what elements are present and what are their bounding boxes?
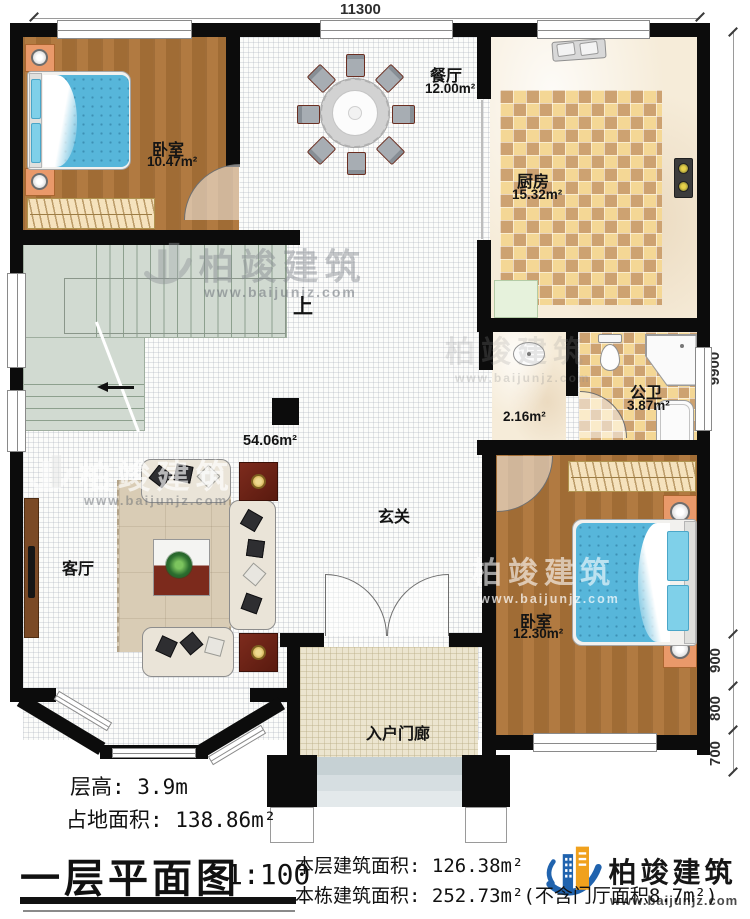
stairs-up-label: 上 <box>293 290 313 319</box>
sofa-pillow <box>173 463 193 483</box>
dining-chair <box>346 54 365 77</box>
stove-burner <box>678 163 689 174</box>
dining-chair <box>297 105 320 124</box>
wall-hallway-left <box>479 318 493 370</box>
footprint-area-text: 占地面积: 138.86m² <box>66 804 276 834</box>
potted-plant <box>166 552 192 578</box>
stairs-direction-line <box>107 386 134 389</box>
bedroom2-area: 12.30m² <box>513 626 563 641</box>
plan-title: 一层平面图 <box>20 846 240 904</box>
wall-bedroom1-right <box>226 37 240 167</box>
sink-basin <box>556 42 576 57</box>
pillow <box>31 123 41 163</box>
bedroom1-area: 10.47m² <box>147 154 197 169</box>
wall-kitchen-bottom <box>477 318 710 332</box>
foyer-label: 玄关 <box>378 503 410 527</box>
bathroom-right-window <box>695 347 712 431</box>
tv <box>28 546 35 598</box>
dining-top-window <box>320 20 453 39</box>
shower-drain <box>680 344 684 348</box>
floor-area-text: 本层建筑面积: 126.38m² <box>295 851 523 878</box>
bedroom2-wardrobe <box>568 461 696 492</box>
bedroom2-bottom-window <box>533 733 657 752</box>
bed-sheet <box>638 523 670 642</box>
kitchen-area: 15.32m² <box>512 187 562 202</box>
stove-burner <box>678 181 689 192</box>
dim-top-width: 11300 <box>340 1 381 18</box>
bedroom1-top-window <box>57 20 192 39</box>
foyer-area: 54.06m² <box>243 433 297 449</box>
toilet-tank <box>598 334 622 343</box>
porch-column-left <box>267 755 317 807</box>
side-table-decor <box>251 474 266 489</box>
title-underline-thin <box>23 910 295 912</box>
porch-column-right <box>462 755 510 807</box>
kitchen-opening-track <box>481 100 483 239</box>
living-left-window <box>7 390 26 452</box>
kitchen-counter <box>494 280 538 318</box>
dim-right-line <box>733 32 734 772</box>
pillow <box>667 585 689 631</box>
kitchen-top-window <box>537 20 650 39</box>
porch-step <box>317 791 462 807</box>
building-area-text: 本栋建筑面积: 252.73m²(不含门厅面积8.7m²) <box>295 881 717 908</box>
foyer-column <box>272 398 299 425</box>
dining-table-center <box>348 106 362 120</box>
hallway-area: 2.16m² <box>503 409 546 424</box>
dim-tick <box>29 12 39 22</box>
floor-plan-canvas: 11300 9900 900 800 700 上 <box>0 0 750 919</box>
toilet-bowl <box>600 344 620 371</box>
stairs-direction-arrow <box>97 382 108 392</box>
wall-bedroom2-left <box>482 455 496 755</box>
dining-area: 12.00m² <box>425 81 475 96</box>
pillow <box>31 79 41 119</box>
sofa-pillow <box>246 539 265 558</box>
stairs-treads <box>24 384 144 430</box>
side-table-decor <box>251 645 266 660</box>
porch-step <box>317 757 462 775</box>
dining-chair <box>392 105 415 124</box>
porch-label: 入户门廊 <box>366 720 430 744</box>
dim-top-line <box>33 18 700 19</box>
pillow <box>667 531 689 581</box>
floor-height-text: 层高: 3.9m <box>70 771 188 801</box>
porch-step <box>317 775 462 791</box>
living-label: 客厅 <box>62 555 94 579</box>
wall-bath-divider <box>566 332 578 396</box>
bedroom1-wardrobe <box>27 198 155 229</box>
bay-front-window <box>112 748 196 758</box>
stairs-left-window <box>7 273 26 368</box>
lamp <box>31 49 48 66</box>
wall-bath-bottom <box>477 440 710 455</box>
porch-column-base <box>270 807 314 843</box>
sink-basin <box>579 41 599 56</box>
wall-entry-right <box>449 633 496 647</box>
basin-drain <box>527 352 531 356</box>
lamp <box>31 173 48 190</box>
bathroom-area: 3.87m² <box>627 398 670 413</box>
dining-chair <box>347 152 366 175</box>
dim-tick <box>695 12 705 22</box>
wall-bedroom1-bottom <box>10 230 300 245</box>
porch-column-base <box>465 807 507 843</box>
wall-kitchen-left-upper <box>477 37 491 99</box>
